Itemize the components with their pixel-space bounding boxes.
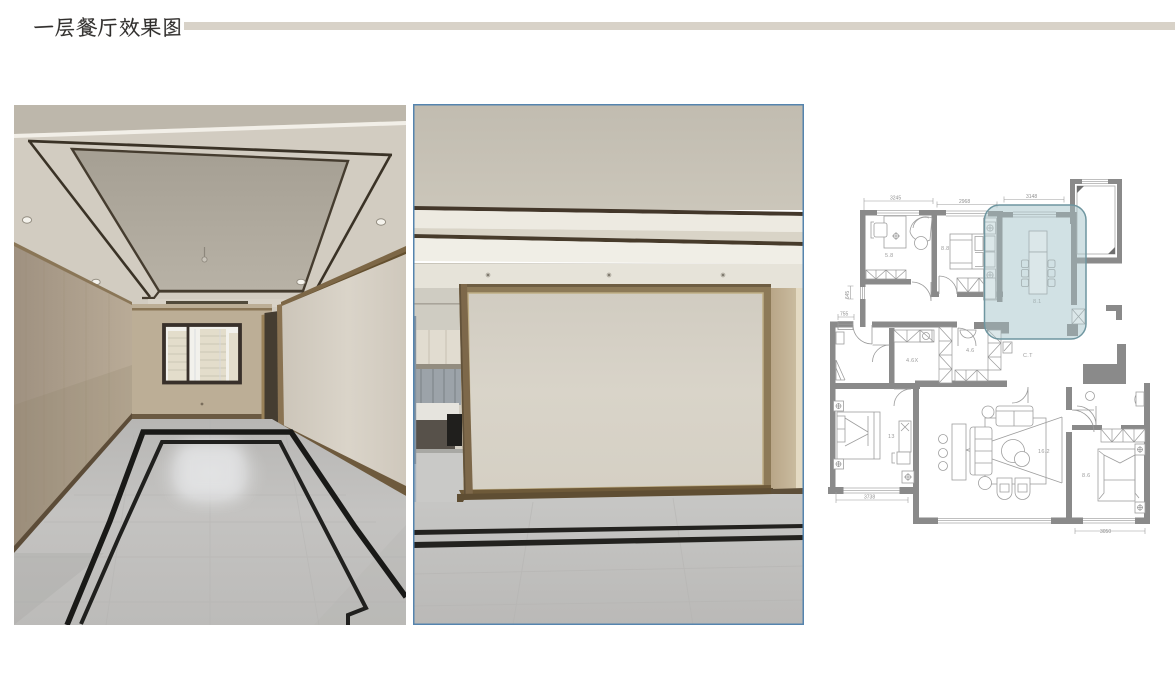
svg-text:755: 755 [840, 312, 849, 318]
svg-text:3050: 3050 [1100, 529, 1111, 535]
svg-text:8.6: 8.6 [1082, 473, 1091, 479]
svg-text:4.6X: 4.6X [906, 358, 919, 364]
svg-text:3148: 3148 [1026, 194, 1037, 200]
svg-text:13: 13 [888, 434, 895, 440]
svg-text:16.2: 16.2 [1038, 449, 1050, 455]
svg-text:4.6: 4.6 [966, 348, 975, 354]
svg-text:645: 645 [845, 291, 851, 300]
svg-text:8.8: 8.8 [941, 246, 950, 252]
svg-text:5.8: 5.8 [885, 253, 894, 259]
svg-text:3245: 3245 [890, 196, 901, 202]
svg-text:2968: 2968 [959, 199, 970, 205]
svg-text:C.T: C.T [1023, 353, 1033, 359]
svg-text:3738: 3738 [864, 495, 875, 501]
